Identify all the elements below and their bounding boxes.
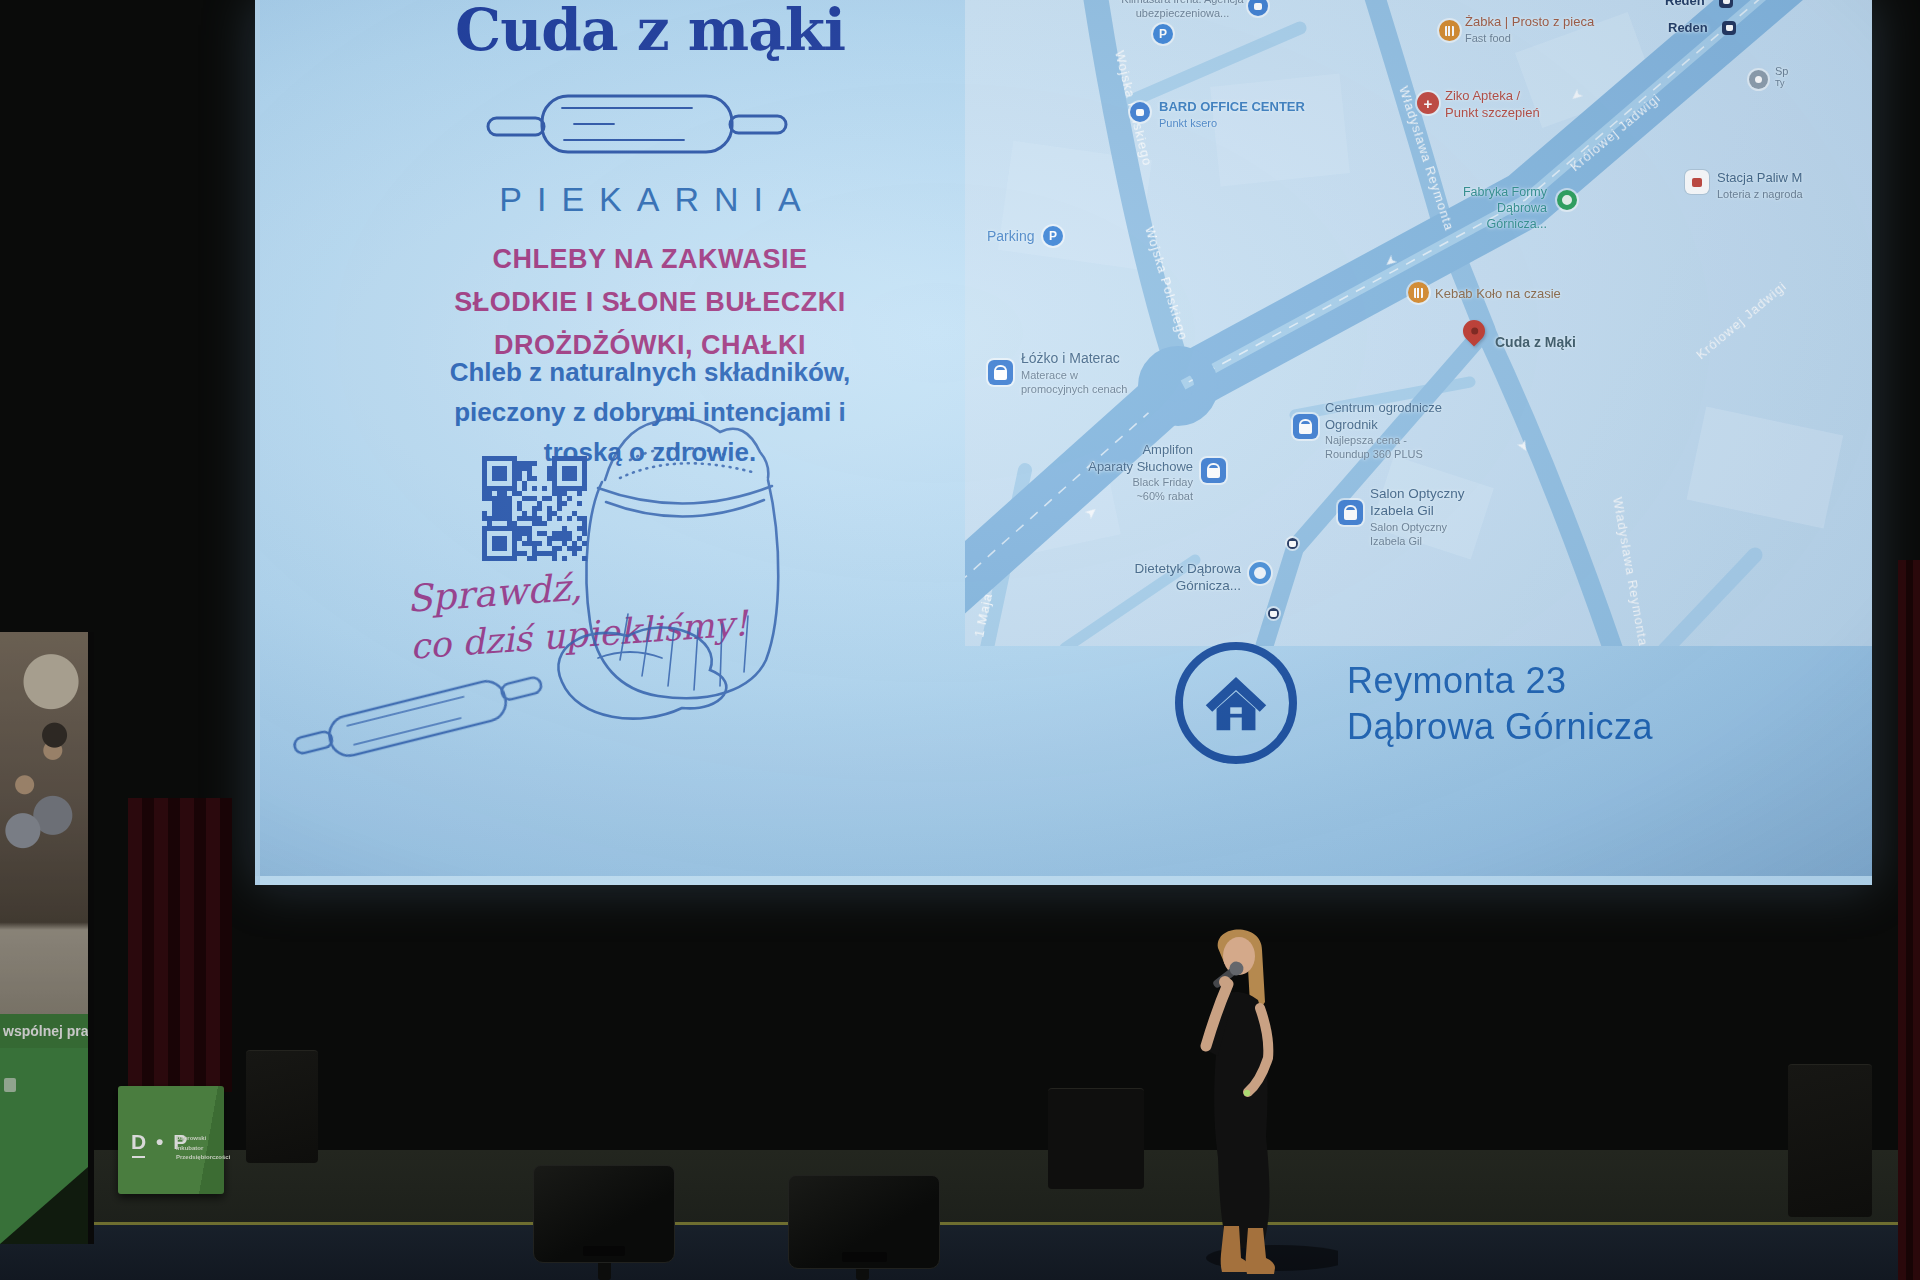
bus-stop-icon — [1287, 538, 1298, 549]
parking-icon: P — [1043, 226, 1063, 246]
auditorium-scene: Cuda z mąki PIEKARNIA CHLEBY NA ZAKWASIE… — [0, 0, 1920, 1280]
house-glyph — [1200, 667, 1272, 739]
map-poi-ziko: Ziko Apteka / Punkt szczepień — [1445, 88, 1540, 121]
stage-apron — [0, 1225, 1920, 1280]
map-poi-salon-optyczny: Salon Optyczny Izabela Gil Salon Optyczn… — [1370, 485, 1465, 548]
map-poi-cuda-z-maki: Cuda z Mąki — [1495, 334, 1576, 352]
address-block: Reymonta 23 Dąbrowa Górnicza — [1175, 636, 1835, 816]
kebab-icon — [1408, 282, 1429, 303]
stage-curtain-left — [128, 798, 232, 1092]
rollup-banner: wspólnej pracy — [0, 632, 94, 1244]
map-poi-amplifon: Amplifon Aparaty Słuchowe Black Friday ~… — [1073, 442, 1193, 503]
map-poi-bard: BARD OFFICE CENTER Punkt ksero — [1159, 99, 1305, 130]
banner-logo-mark — [4, 1078, 16, 1092]
parking-icon: P — [1153, 24, 1173, 44]
store-icon — [1749, 70, 1768, 89]
rolling-pin-icon — [478, 84, 794, 168]
stage-speaker — [1048, 1088, 1144, 1189]
map-poi-dietetyk: Dietetyk Dąbrowa Górnicza... — [1133, 560, 1241, 595]
garden-center-ad-icon — [1293, 414, 1318, 439]
map-poi-parking: Parking — [987, 228, 1034, 246]
map-poi-lozko-materac: Łóżko i Materac Materace w promocyjnych … — [1021, 350, 1127, 396]
address-line: Reymonta 23 — [1347, 658, 1653, 704]
flour-sack-sketch — [290, 360, 830, 780]
optician-ad-icon — [1338, 500, 1363, 525]
banner-footer — [0, 1048, 88, 1244]
street-label-krolowej-jadwigi: Królowej Jadwigi — [1693, 278, 1789, 362]
hearing-aid-ad-icon — [1201, 458, 1226, 483]
offer-line: SŁODKIE I SŁONE BUŁECZKI — [370, 281, 930, 324]
fast-food-icon — [1439, 20, 1460, 41]
stage-speaker — [1788, 1064, 1872, 1217]
dp-logo-cube: D • P Dąbrowski Inkubator Przedsiębiorcz… — [118, 1086, 224, 1194]
stage-curtain-right — [1898, 560, 1920, 1280]
slide-title: Cuda z mąki — [370, 0, 930, 64]
bus-stop-icon — [1719, 0, 1733, 8]
address-line: Dąbrowa Górnicza — [1347, 704, 1653, 750]
bus-stop-icon — [1268, 608, 1279, 619]
offer-list: CHLEBY NA ZAKWASIE SŁODKIE I SŁONE BUŁEC… — [370, 238, 930, 367]
pharmacy-icon: + — [1417, 92, 1439, 114]
offer-line: CHLEBY NA ZAKWASIE — [370, 238, 930, 281]
dietician-icon — [1249, 562, 1271, 584]
venue-address: Reymonta 23 Dąbrowa Górnicza — [1347, 658, 1653, 750]
map-poi-reden-stop: Reden — [1668, 20, 1708, 37]
map-poi-fabryka-formy: Fabryka Formy Dąbrowa Górnicza... — [1435, 184, 1547, 232]
map-poi-centrum-ogrodnicze: Centrum ogrodnicze Ogrodnik Najlepsza ce… — [1325, 400, 1442, 461]
slide-subtitle: PIEKARNIA — [370, 180, 930, 219]
map-poi-stacja-paliw: Stacja Paliw M Loteria z nagroda — [1717, 170, 1803, 201]
mattress-store-ad-icon — [988, 360, 1013, 385]
gym-icon — [1557, 190, 1577, 210]
office-center-icon — [1130, 102, 1150, 122]
stage-monitor — [788, 1175, 940, 1269]
dp-org-name: Dąbrowski Inkubator Przedsiębiorczości — [176, 1134, 230, 1163]
home-icon — [1175, 642, 1297, 764]
presenter-person — [1168, 896, 1338, 1280]
stage-monitor — [533, 1165, 675, 1263]
presenter-remote — [1244, 1090, 1250, 1096]
street-label-wladyslawa-reymonta: Władysława Reymonta — [1610, 496, 1651, 646]
map-panel: Wojska Polskiego Wojska Polskiego Władys… — [965, 0, 1872, 646]
projection-screen: Cuda z mąki PIEKARNIA CHLEBY NA ZAKWASIE… — [255, 0, 1872, 885]
map-poi-kebab: Kebab Koło na czasie — [1435, 286, 1561, 303]
map-poi-klimasara: Klimasara Irena. Agencja ubezpieczeniowa… — [1105, 0, 1260, 20]
map-poi-reden-stop: Reden — [1665, 0, 1705, 10]
map-poi-zabka: Żabka | Prosto z pieca Fast food — [1465, 14, 1594, 45]
banner-caption: wspólnej pracy — [0, 1014, 88, 1048]
map-poi-sp: Sp Ty — [1775, 64, 1788, 90]
banner-photo — [0, 632, 88, 1014]
fuel-station-icon — [1685, 170, 1709, 194]
bus-stop-icon — [1722, 21, 1736, 35]
stage-speaker — [246, 1050, 318, 1163]
